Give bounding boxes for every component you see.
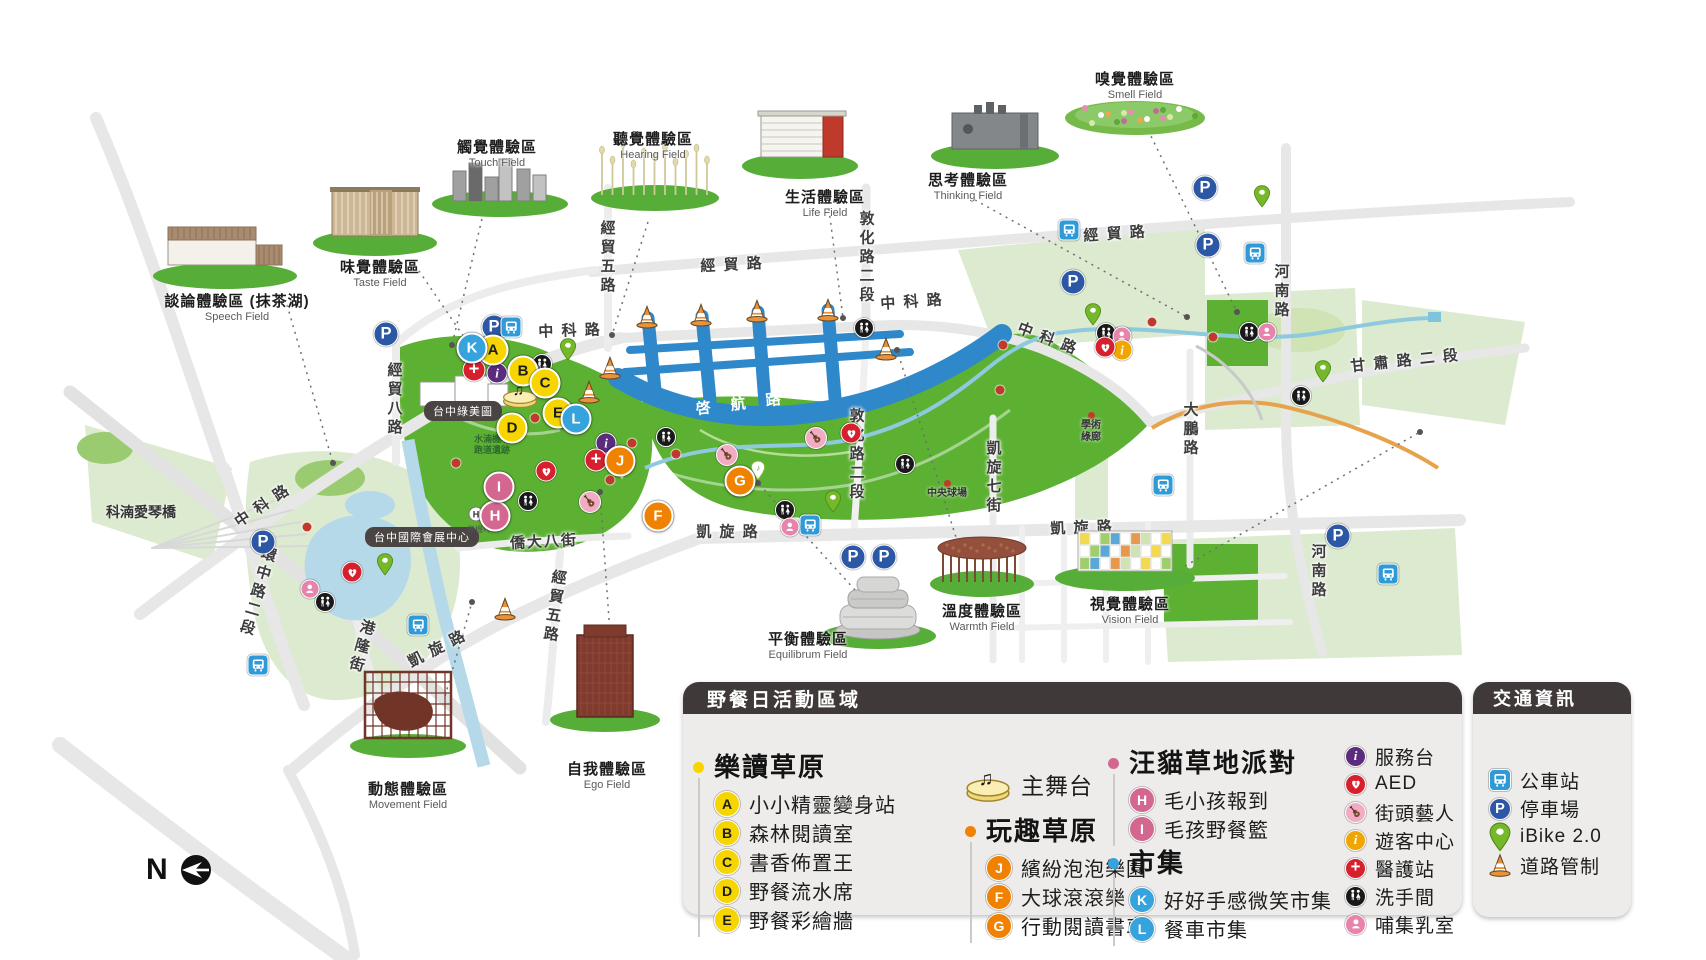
section-dot — [693, 762, 704, 773]
legend-item-B: B 森林閱讀室 — [714, 818, 955, 847]
transport-body: 公車站P停車場iBike 2.0道路管制 — [1473, 714, 1631, 917]
item-letter-badge: I — [1129, 816, 1155, 842]
compass: N — [146, 852, 214, 888]
transport-row-cone: 道路管制 — [1489, 852, 1619, 881]
transport-label: 道路管制 — [1520, 852, 1600, 879]
facility-label: AED — [1375, 773, 1417, 795]
restroom-icon — [1345, 886, 1366, 907]
item-letter-badge: D — [714, 878, 740, 904]
item-label: 書香佈置王 — [749, 847, 854, 876]
section-title: 樂讀草原 — [714, 752, 955, 782]
parking-icon: P — [1489, 798, 1511, 820]
item-label: 毛孩野餐籃 — [1164, 814, 1269, 843]
info-purple-icon: i — [1345, 746, 1366, 767]
legend-section-happy-read: 樂讀草原 A 小小精靈變身站 B 森林閱讀室 C 書香佈置王 D 野餐流水席 E… — [693, 752, 955, 934]
traffic-cone-icon — [1489, 853, 1511, 878]
facility-label: 哺集乳室 — [1375, 911, 1455, 938]
ibike-icon — [1489, 822, 1511, 852]
item-letter-badge: A — [714, 791, 740, 817]
section-title: 市集 — [1129, 848, 1343, 878]
facility-row-guitar: 街頭藝人 — [1345, 798, 1460, 826]
park-map-page: { "colors":{ "park_bright":"#5cb133","pa… — [0, 0, 1706, 960]
item-letter-badge: J — [986, 855, 1012, 881]
transport-row-parking: P停車場 — [1489, 795, 1619, 824]
svg-text:♫: ♫ — [978, 768, 993, 790]
item-letter-badge: B — [714, 820, 740, 846]
legend-item-D: D 野餐流水席 — [714, 876, 955, 905]
facility-label: 洗手間 — [1375, 883, 1435, 910]
facility-row-aed: AED — [1345, 770, 1460, 798]
guitar-icon — [1345, 802, 1366, 823]
legend-panel: 野餐日活動區域 樂讀草原 A 小小精靈變身站 B 森林閱讀室 C 書香佈置王 D… — [683, 682, 1462, 915]
facility-row-info-purple: i服務台 — [1345, 742, 1460, 770]
item-label: 野餐彩繪牆 — [749, 905, 854, 934]
facility-row-info-yellow: i遊客中心 — [1345, 826, 1460, 854]
legend-item-C: C 書香佈置王 — [714, 847, 955, 876]
item-label: 野餐流水席 — [749, 876, 854, 905]
main-stage-label: 主舞台 — [1021, 767, 1093, 801]
legend-item-L: L 餐車市集 — [1129, 914, 1343, 943]
section-dot — [1108, 758, 1119, 769]
facility-label: 街頭藝人 — [1375, 799, 1455, 826]
legend-item-K: K 好好手感微笑市集 — [1129, 885, 1343, 914]
compass-label: N — [146, 853, 168, 887]
legend-section-pet-party: 汪貓草地派對 H 毛小孩報到 I 毛孩野餐籃 — [1108, 748, 1343, 843]
section-line — [970, 842, 972, 943]
section-line — [1113, 774, 1115, 846]
legend-item-A: A 小小精靈變身站 — [714, 789, 955, 818]
facility-label: 服務台 — [1375, 743, 1435, 770]
facility-label: 醫護站 — [1375, 855, 1435, 882]
section-title: 汪貓草地派對 — [1129, 748, 1343, 778]
item-letter-badge: C — [714, 849, 740, 875]
transport-label: 公車站 — [1520, 767, 1580, 794]
item-label: 小小精靈變身站 — [749, 789, 896, 818]
facility-row-medical: +醫護站 — [1345, 854, 1460, 882]
legend-item-H: H 毛小孩報到 — [1129, 785, 1343, 814]
transport-label: 停車場 — [1520, 795, 1580, 822]
item-letter-badge: E — [714, 907, 740, 933]
transport-label: iBike 2.0 — [1520, 826, 1602, 848]
nursing-icon — [1345, 914, 1366, 935]
legend-item-I: I 毛孩野餐籃 — [1129, 814, 1343, 843]
facility-label: 遊客中心 — [1375, 827, 1455, 854]
item-letter-badge: G — [986, 913, 1012, 939]
legend-body: 樂讀草原 A 小小精靈變身站 B 森林閱讀室 C 書香佈置王 D 野餐流水席 E… — [683, 714, 1462, 915]
legend-section-market: 市集 K 好好手感微笑市集 L 餐車市集 — [1108, 848, 1343, 943]
legend-item-E: E 野餐彩繪牆 — [714, 905, 955, 934]
section-items: A 小小精靈變身站 B 森林閱讀室 C 書香佈置王 D 野餐流水席 E 野餐彩繪… — [714, 789, 955, 934]
item-letter-badge: L — [1129, 916, 1155, 942]
medical-icon: + — [1345, 858, 1366, 879]
facility-row-nursing: 哺集乳室 — [1345, 910, 1460, 938]
transport-row-bus: 公車站 — [1489, 766, 1619, 795]
main-stage-icon: ♫ — [965, 765, 1011, 803]
legend-title: 野餐日活動區域 — [683, 682, 1462, 714]
item-label: 餐車市集 — [1164, 914, 1248, 943]
transport-row-ibike: iBike 2.0 — [1489, 823, 1619, 852]
bus-icon — [1489, 769, 1511, 791]
item-letter-badge: F — [986, 884, 1012, 910]
section-dot — [965, 826, 976, 837]
section-items: H 毛小孩報到 I 毛孩野餐籃 — [1129, 785, 1343, 843]
section-dot — [1108, 858, 1119, 869]
compass-icon — [178, 852, 214, 888]
section-line — [1113, 874, 1115, 946]
section-line — [698, 778, 700, 937]
aed-icon — [1345, 774, 1366, 795]
info-yellow-icon: i — [1345, 830, 1366, 851]
item-label: 毛小孩報到 — [1164, 785, 1269, 814]
transport-title: 交通資訊 — [1473, 682, 1631, 714]
transport-panel: 交通資訊 公車站P停車場iBike 2.0道路管制 — [1473, 682, 1631, 917]
item-letter-badge: K — [1129, 887, 1155, 913]
item-label: 森林閱讀室 — [749, 818, 854, 847]
facility-row-restroom: 洗手間 — [1345, 882, 1460, 910]
section-items: K 好好手感微笑市集 L 餐車市集 — [1129, 885, 1343, 943]
item-label: 好好手感微笑市集 — [1164, 885, 1332, 914]
item-letter-badge: H — [1129, 787, 1155, 813]
